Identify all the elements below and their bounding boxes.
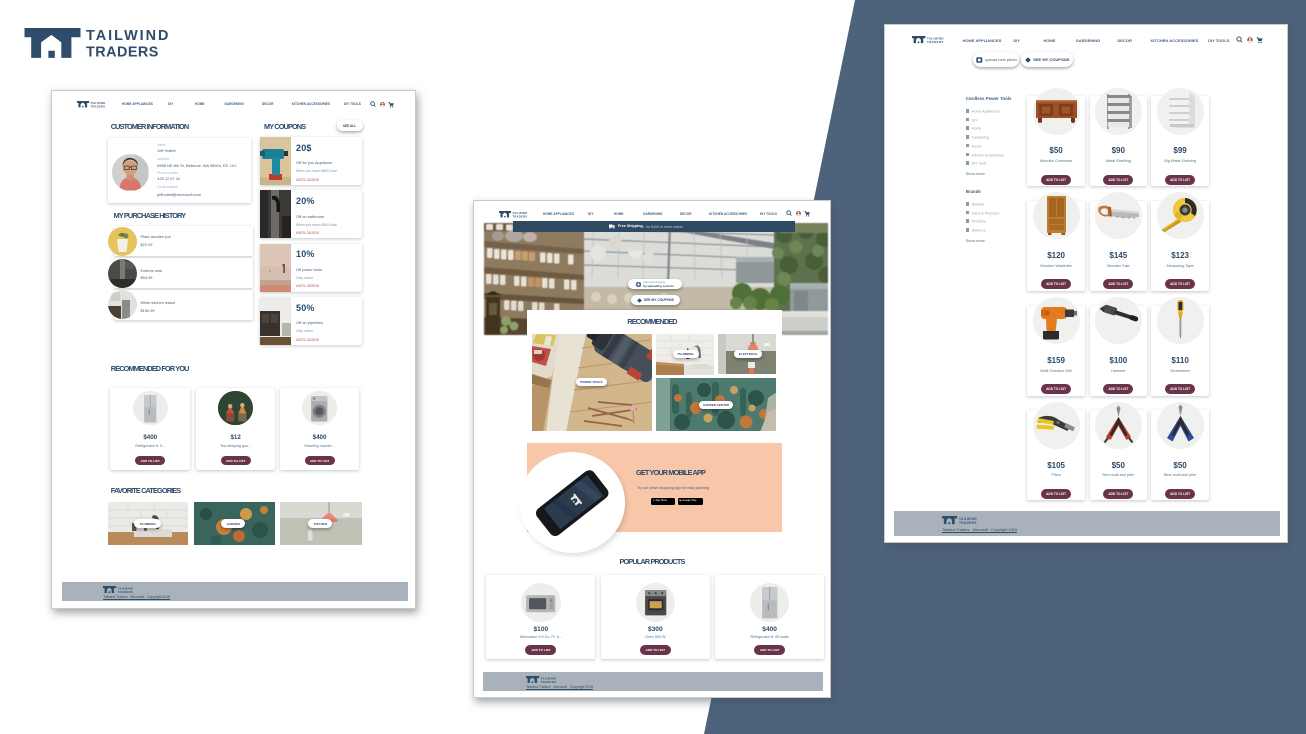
svg-text:TRADERS: TRADERS (90, 104, 105, 108)
svg-text:TRADERS: TRADERS (512, 214, 527, 218)
svg-text:TRADERS: TRADERS (927, 40, 944, 44)
svg-text:TRADERS: TRADERS (541, 680, 557, 684)
svg-text:TRADERS: TRADERS (86, 45, 161, 61)
svg-text:TRADERS: TRADERS (959, 521, 977, 525)
svg-text:TRADERS: TRADERS (118, 590, 134, 594)
svg-text:TAILWIND: TAILWIND (86, 28, 171, 44)
